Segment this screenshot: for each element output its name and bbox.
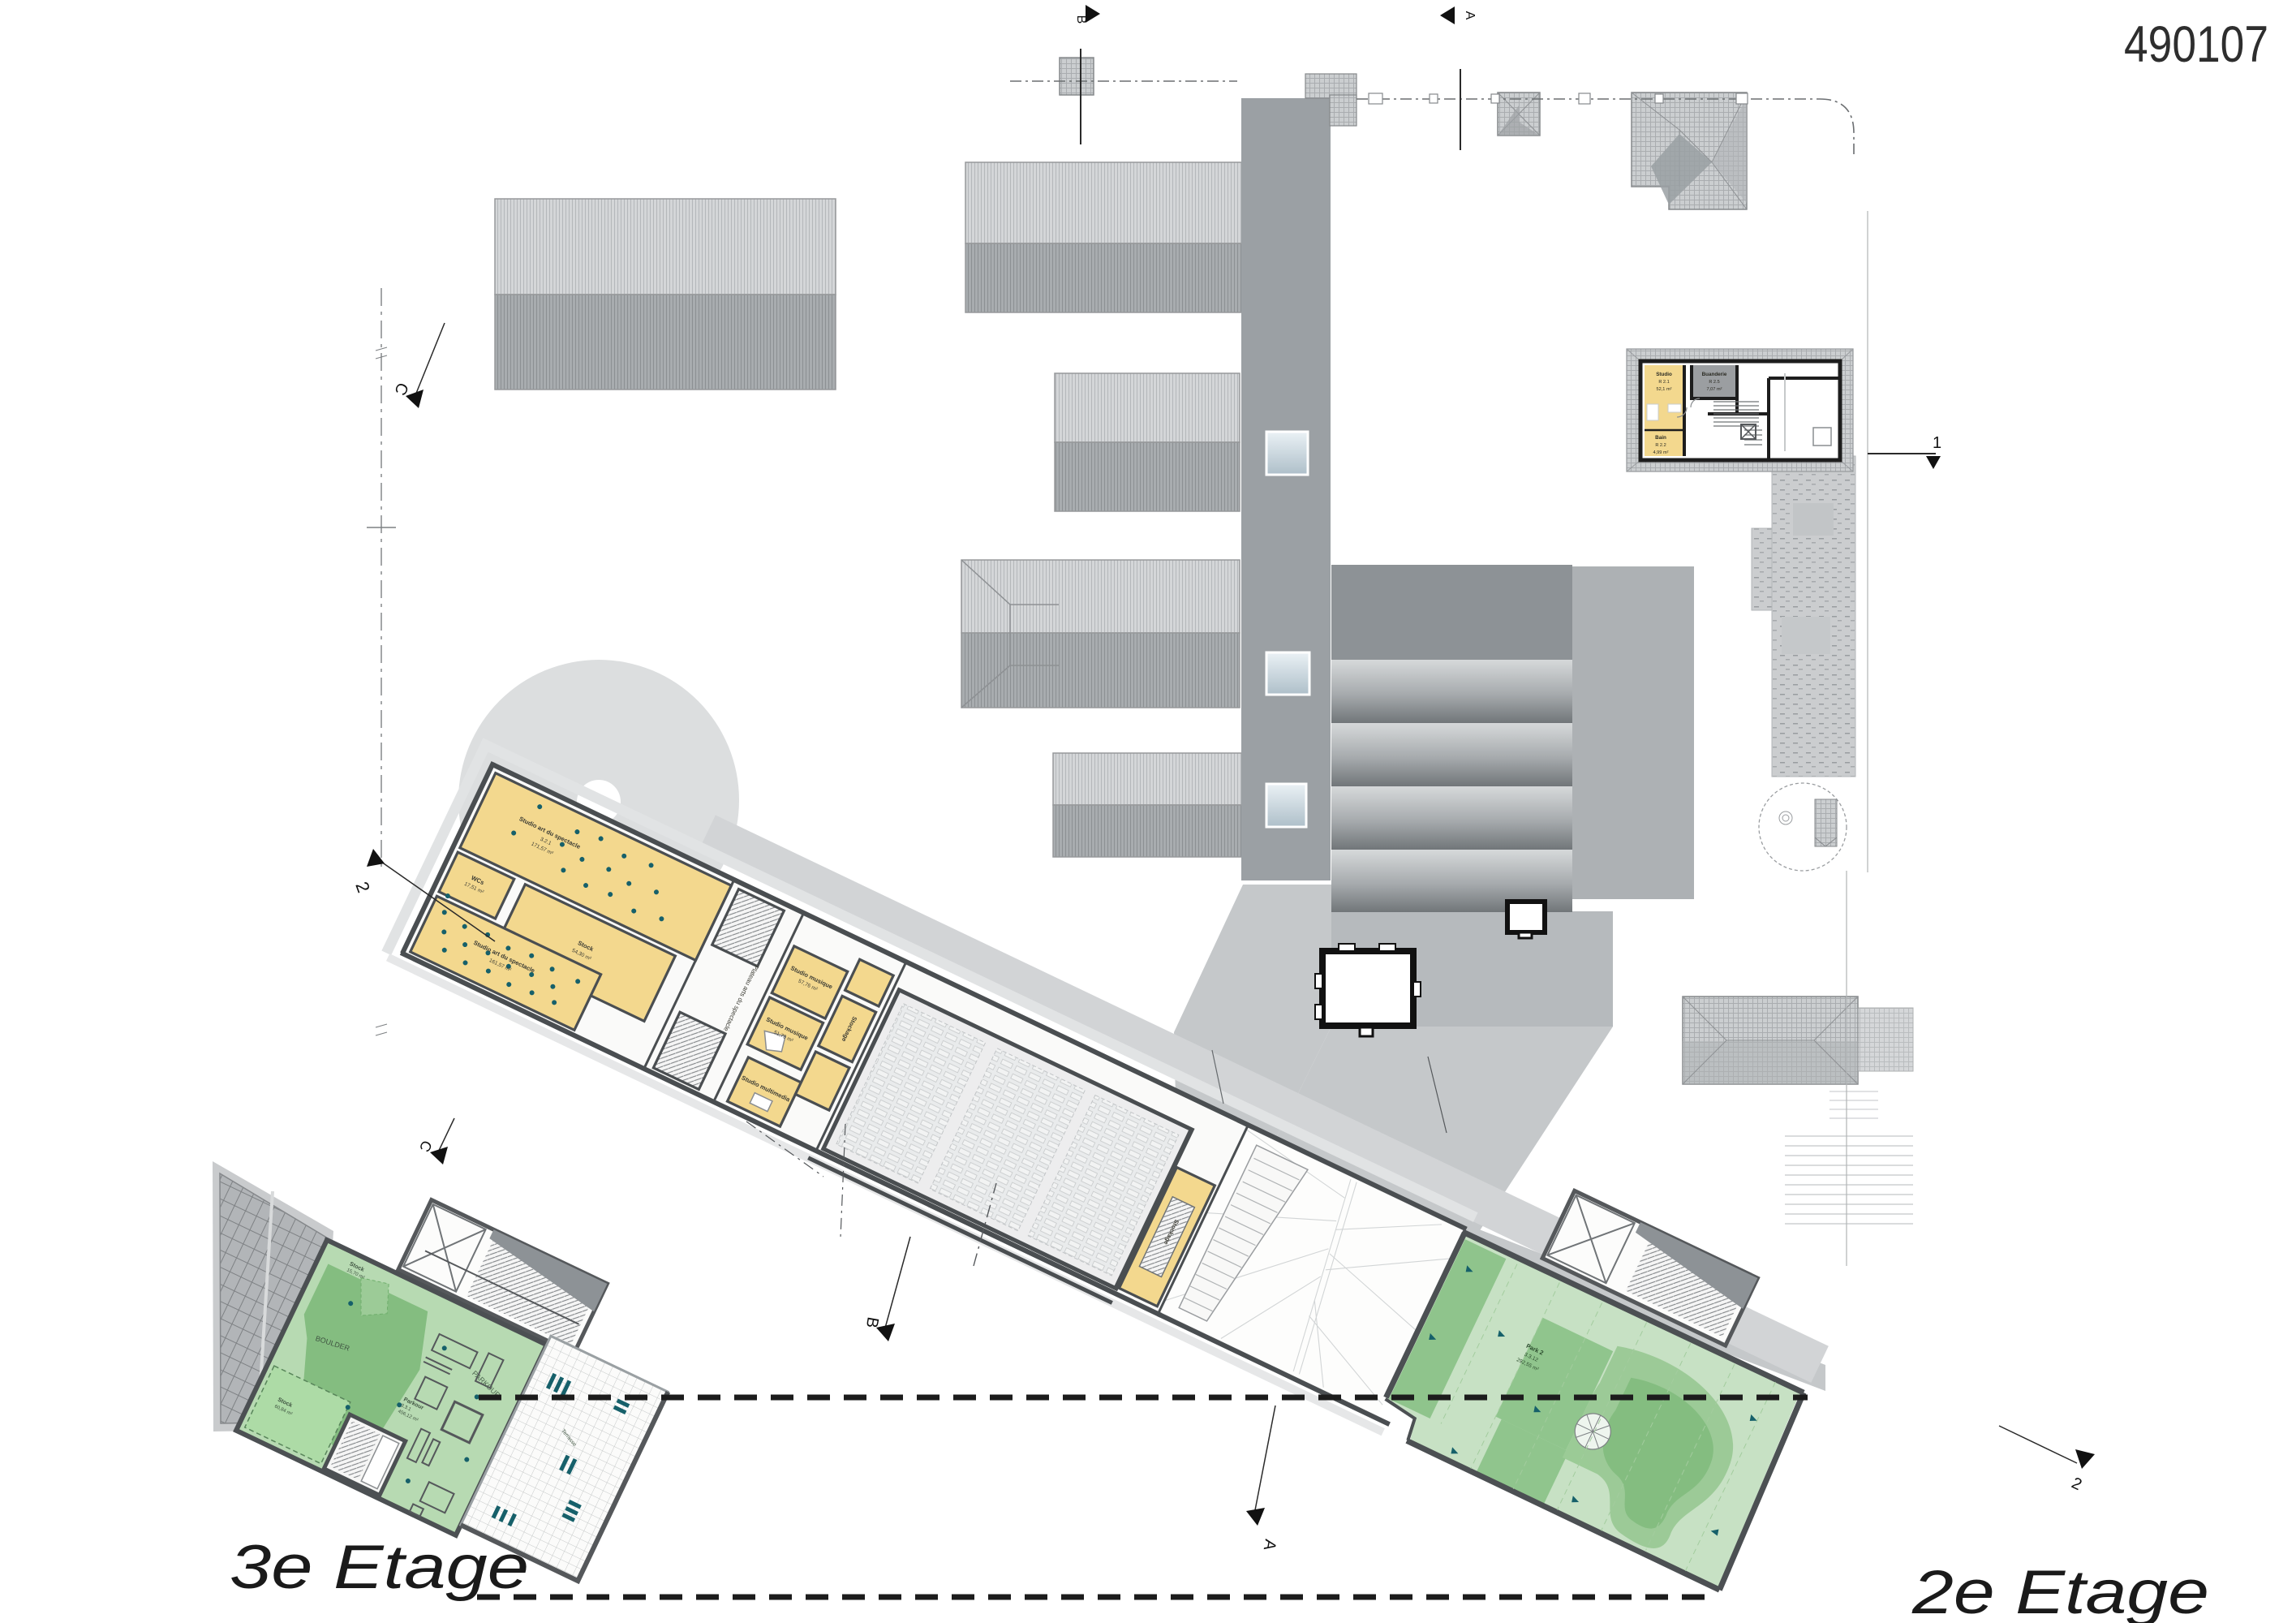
- svg-text:R 2.5: R 2.5: [1709, 380, 1719, 385]
- svg-text:3e Etage: 3e Etage: [230, 1533, 529, 1602]
- svg-text:490107: 490107: [2124, 16, 2268, 73]
- svg-text:Studio: Studio: [1656, 372, 1672, 377]
- svg-text:7,07 m²: 7,07 m²: [1707, 387, 1722, 392]
- svg-text:1: 1: [1933, 434, 1941, 452]
- svg-text:Buanderie: Buanderie: [1702, 372, 1727, 377]
- svg-text:R 2.2: R 2.2: [1655, 443, 1666, 448]
- svg-text:4,99 m²: 4,99 m²: [1653, 450, 1669, 455]
- svg-text:52,1 m²: 52,1 m²: [1657, 387, 1672, 392]
- svg-text:R 2.1: R 2.1: [1658, 380, 1669, 385]
- svg-text:2e Etage: 2e Etage: [1911, 1558, 2209, 1623]
- svg-text:Bain: Bain: [1655, 435, 1666, 441]
- svg-text:B: B: [1074, 15, 1088, 24]
- svg-text:A: A: [1463, 11, 1477, 20]
